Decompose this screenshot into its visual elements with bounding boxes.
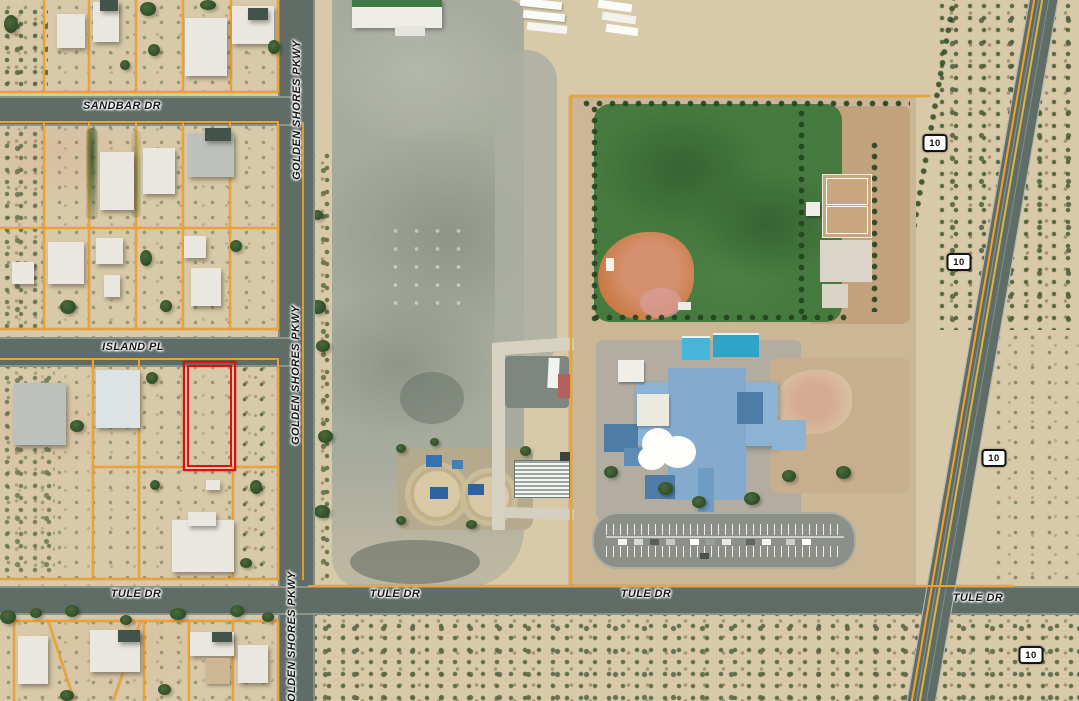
industrial-building-green-roof xyxy=(352,0,442,7)
house-dark-roof xyxy=(100,0,118,11)
play-structure xyxy=(426,455,442,467)
parcel-line xyxy=(0,91,279,93)
tree xyxy=(160,300,172,312)
parcel-line xyxy=(0,578,279,580)
parcel-line xyxy=(0,121,279,123)
tree xyxy=(4,15,18,33)
parked-car xyxy=(700,553,709,559)
parked-car xyxy=(722,539,731,545)
walk-path xyxy=(492,345,505,530)
play-structure xyxy=(452,460,463,469)
tree xyxy=(60,690,74,701)
parcel-line xyxy=(43,0,45,93)
house xyxy=(191,268,221,306)
parcel-line xyxy=(143,620,145,701)
house-dark-roof xyxy=(118,630,140,642)
parcel-line xyxy=(233,466,279,468)
tree xyxy=(466,520,477,529)
court-markings xyxy=(826,178,868,205)
tree xyxy=(120,615,132,625)
tree xyxy=(314,505,330,518)
tree xyxy=(240,558,252,568)
tree xyxy=(268,40,280,54)
tree xyxy=(140,250,152,266)
tree xyxy=(230,605,244,617)
dark-ground-blotch xyxy=(350,540,480,584)
parked-car xyxy=(802,539,811,545)
house xyxy=(185,18,227,76)
parcel-line xyxy=(43,121,45,330)
tree xyxy=(250,480,262,494)
tree xyxy=(65,605,79,617)
parked-car xyxy=(618,539,627,545)
white-roof-cloud xyxy=(660,436,696,468)
south-desert-shrubs xyxy=(308,608,1079,701)
trailer xyxy=(606,24,639,36)
house xyxy=(172,520,234,572)
gray-ground-extension xyxy=(495,50,557,370)
tree xyxy=(396,516,406,525)
parcel-line xyxy=(277,620,279,701)
parcel-line xyxy=(277,121,279,330)
tree xyxy=(30,608,42,618)
shed xyxy=(206,480,220,490)
tree xyxy=(120,60,130,70)
parked-car xyxy=(634,539,643,545)
house xyxy=(104,275,120,297)
parcel-line xyxy=(302,122,304,580)
school-building-wing-dark xyxy=(737,392,763,424)
road-tule-dr xyxy=(0,586,1079,615)
industrial-annex xyxy=(395,26,425,36)
shade-structure xyxy=(514,460,570,498)
route-shield-10: 10 xyxy=(923,134,948,152)
school-building-wing xyxy=(772,420,806,450)
tree xyxy=(158,684,171,695)
street-label-golden-shores-pkwy-1: GOLDEN SHORES PKWY xyxy=(291,40,303,180)
school-boundary-south xyxy=(308,585,1014,587)
parcel-line xyxy=(13,620,15,701)
dugout xyxy=(606,258,614,271)
house xyxy=(48,242,84,284)
tree xyxy=(692,496,706,508)
tree xyxy=(604,466,618,478)
parked-car xyxy=(786,539,795,545)
house-dark-roof xyxy=(248,8,268,20)
satellite-map-canvas[interactable]: SANDBAR DR ISLAND PL TULE DR TULE DR TUL… xyxy=(0,0,1079,701)
tree xyxy=(150,480,160,490)
tree xyxy=(200,0,216,10)
house xyxy=(238,645,268,683)
parked-car xyxy=(666,539,675,545)
parcel-line xyxy=(135,0,137,93)
trailer xyxy=(598,0,633,12)
white-roof-cloud xyxy=(638,446,666,470)
parking-center-line xyxy=(606,536,844,538)
parked-car xyxy=(650,539,659,545)
parcel-line xyxy=(92,358,94,580)
trailer xyxy=(527,22,568,34)
house xyxy=(184,236,206,258)
tree-strip xyxy=(86,128,98,220)
ground-speckles xyxy=(385,222,470,307)
parcel-line xyxy=(88,0,90,93)
tree xyxy=(230,240,242,252)
street-label-sandbar-dr: SANDBAR DR xyxy=(83,100,161,112)
tree xyxy=(318,430,333,443)
trailer xyxy=(520,0,563,10)
court-shed xyxy=(806,202,820,216)
parcel-line xyxy=(0,328,279,330)
house xyxy=(57,14,85,48)
tree xyxy=(658,482,673,495)
tree xyxy=(782,470,796,482)
street-label-tule-dr-3: TULE DR xyxy=(621,588,671,600)
tree xyxy=(0,610,16,624)
route-shield-10: 10 xyxy=(947,253,972,271)
parcel-line xyxy=(182,0,184,93)
house-dark-roof xyxy=(212,632,232,642)
white-rooftop-unit xyxy=(637,394,669,426)
trailer xyxy=(602,12,637,25)
parking-stripes xyxy=(606,524,844,535)
street-label-island-pl: ISLAND PL xyxy=(102,341,164,353)
play-structure xyxy=(468,484,484,495)
field-tree-row-north xyxy=(580,98,910,110)
dugout xyxy=(678,302,691,310)
tree xyxy=(170,608,186,620)
dark-ground-blotch xyxy=(400,372,464,424)
shed-tan xyxy=(206,658,230,684)
house xyxy=(100,152,134,210)
tree xyxy=(148,44,160,56)
street-label-tule-dr-2: TULE DR xyxy=(370,588,420,600)
route-shield-10: 10 xyxy=(1019,646,1044,664)
tree xyxy=(316,340,330,352)
house xyxy=(14,383,66,445)
parked-car xyxy=(746,539,755,545)
parcel-line xyxy=(277,358,279,580)
cyan-roof-building xyxy=(713,333,759,357)
tree xyxy=(262,612,274,622)
tree xyxy=(430,438,439,446)
street-label-golden-shores-pkwy-2: GOLDEN SHORES PKWY xyxy=(290,305,302,445)
house xyxy=(18,636,48,684)
house-dark-roof xyxy=(205,128,231,141)
house xyxy=(96,370,140,428)
small-building xyxy=(618,360,644,382)
school-boundary-north xyxy=(570,95,930,97)
field-tree-row-south xyxy=(590,312,848,324)
parked-car xyxy=(762,539,771,545)
parking-stripes xyxy=(606,546,844,557)
tree xyxy=(520,446,531,456)
parked-car xyxy=(690,539,699,545)
tree xyxy=(60,300,76,314)
route-shield-10: 10 xyxy=(982,449,1007,467)
tree xyxy=(744,492,760,505)
cyan-roof-building xyxy=(682,336,710,360)
school-boundary-west xyxy=(570,95,572,587)
court-slab xyxy=(820,240,872,282)
court-slab xyxy=(822,284,848,308)
parcel-line xyxy=(0,227,279,229)
house xyxy=(12,262,34,284)
parcel-line xyxy=(92,466,185,468)
subject-parcel-inner-line xyxy=(187,365,232,467)
parked-car xyxy=(706,539,715,545)
field-tree-row-west xyxy=(588,104,598,326)
house xyxy=(96,238,123,264)
house xyxy=(143,148,175,194)
street-label-golden-shores-pkwy-3: GOLDEN SHORES PKWY xyxy=(286,571,298,701)
street-label-tule-dr-4: TULE DR xyxy=(953,592,1003,604)
tree xyxy=(140,2,156,16)
play-structure xyxy=(430,487,448,499)
subject-parcel-outline xyxy=(183,361,236,471)
trailer xyxy=(523,10,566,22)
tree xyxy=(70,420,84,432)
house xyxy=(188,512,216,526)
street-label-tule-dr-1: TULE DR xyxy=(111,588,161,600)
tree xyxy=(836,466,851,479)
court-markings xyxy=(826,206,868,234)
tree xyxy=(146,372,158,384)
tree xyxy=(396,444,406,453)
parcel-line xyxy=(182,121,184,330)
